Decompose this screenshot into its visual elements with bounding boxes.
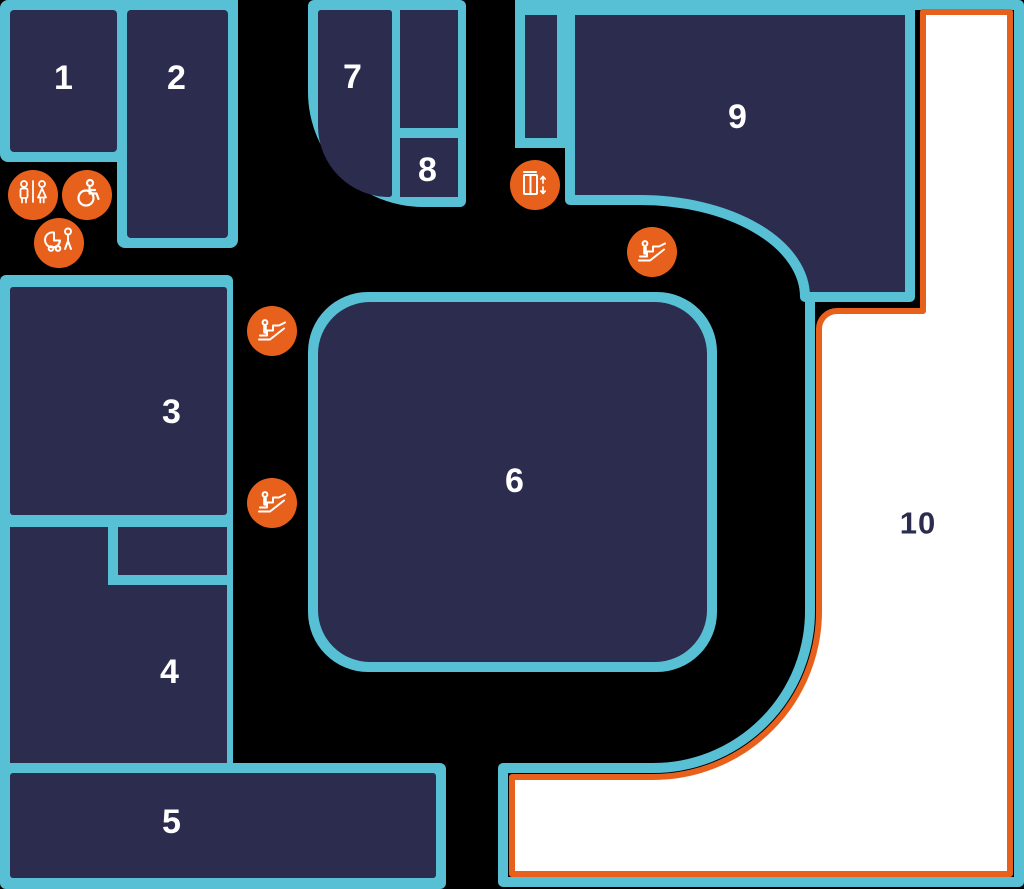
elevator-icon (505, 155, 565, 215)
escalator-icon (242, 473, 302, 533)
room-8-annex[interactable] (400, 10, 458, 128)
room-2-label: 2 (167, 61, 187, 95)
baby-change-icon (29, 213, 89, 273)
room-4-label: 4 (160, 655, 180, 689)
room-1-label: 1 (54, 61, 74, 95)
room-7-label: 7 (343, 60, 363, 94)
escalator-icon (242, 301, 302, 361)
room-3-area[interactable] (10, 287, 227, 515)
room-9-label: 9 (728, 100, 748, 134)
room-2-area[interactable] (127, 10, 228, 238)
room-5-label: 5 (162, 805, 182, 839)
escalator-icon (622, 222, 682, 282)
floor-plan: 1 2 3 4 5 6 7 8 9 10 (0, 0, 1024, 889)
room-6-label: 6 (505, 464, 525, 498)
room-10-label: 10 (900, 508, 936, 539)
room-9-annex[interactable] (520, 10, 562, 143)
room-4-area[interactable] (10, 585, 227, 763)
room-9-area[interactable] (570, 10, 910, 297)
room-5-area[interactable] (10, 773, 436, 878)
room-8-label: 8 (418, 153, 438, 187)
room-3-label: 3 (162, 395, 182, 429)
room-3-lower-area[interactable] (118, 527, 227, 575)
room-3-annex[interactable] (10, 527, 108, 585)
